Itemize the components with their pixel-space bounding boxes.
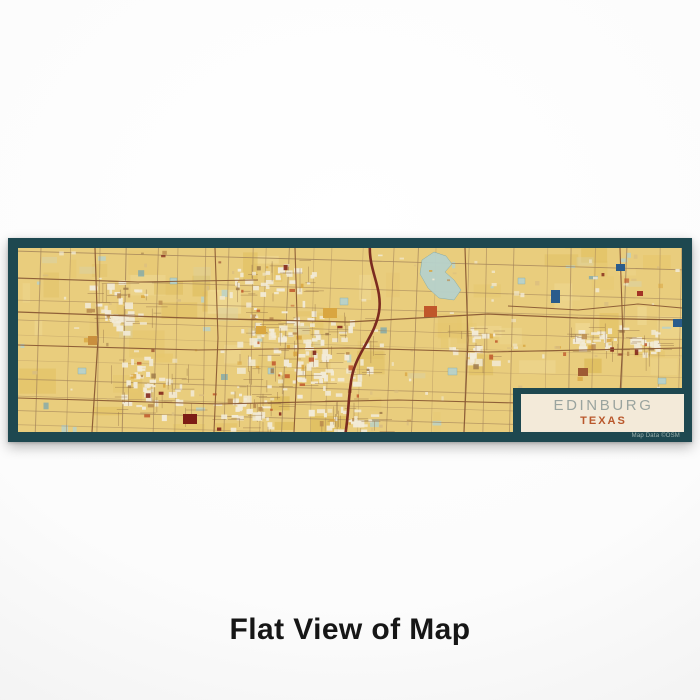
city-name-label: EDINBURG	[552, 398, 654, 414]
state-name-label: TEXAS	[578, 415, 627, 428]
attribution-text: Map Data ©OSM	[632, 433, 680, 440]
product-caption: Flat View of Map	[0, 613, 700, 647]
product-image-stage: EDINBURG TEXAS Map Data ©OSM Flat View o…	[0, 0, 700, 700]
map-label-panel: EDINBURG TEXAS	[521, 394, 684, 432]
map-frame: EDINBURG TEXAS Map Data ©OSM	[8, 238, 692, 442]
